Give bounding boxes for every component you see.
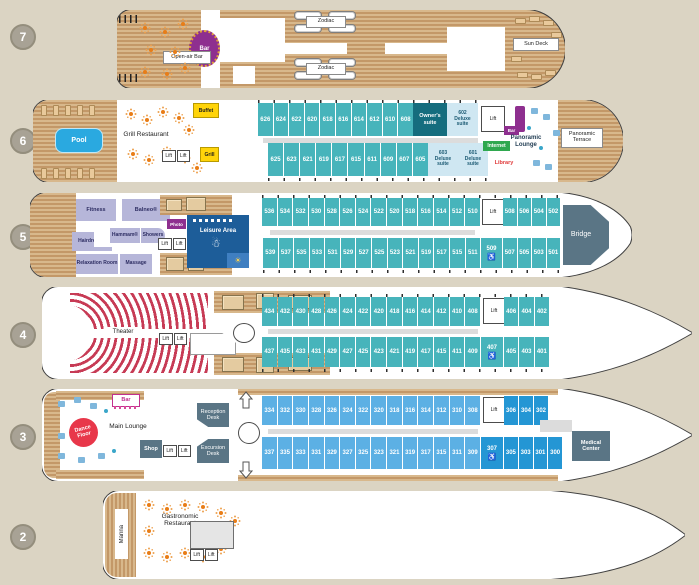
cabin: 412 <box>434 297 449 326</box>
dining-table-icon <box>173 112 185 124</box>
deck-5-cabin-row-bottom-fwd: 507505503501 <box>503 238 560 268</box>
cabin: 416 <box>403 297 418 326</box>
bar-stools <box>114 406 136 409</box>
cabin: 605 <box>413 143 428 176</box>
deck-4-cabin-row-bottom: 4374354334314294274254234214194174154114… <box>262 337 480 367</box>
cabin-number: 509 <box>486 246 496 252</box>
galley-furniture <box>222 357 244 372</box>
lounger-icon <box>53 105 59 116</box>
deck-4-cabin-row-top: 4344324304284264244224204184164144124104… <box>262 297 480 326</box>
balcony-ticks <box>262 369 549 372</box>
deck-7-structure <box>285 43 347 54</box>
lift: Lift <box>481 106 505 132</box>
cabin: 428 <box>309 297 324 326</box>
dining-table-icon <box>215 507 227 519</box>
cabin: 401 <box>535 337 549 367</box>
lounger-icon <box>77 105 83 116</box>
cabin: 531 <box>325 238 340 268</box>
shop: Shop <box>140 440 162 458</box>
deck-3-cabin-row-top: 3343323303283263243223203183163143123103… <box>262 396 480 425</box>
cabin: 432 <box>278 297 293 326</box>
cabin: 528 <box>325 198 340 226</box>
lift: Lift <box>158 238 172 250</box>
lounger-icon <box>545 70 556 76</box>
galley-furniture <box>222 295 244 310</box>
lift: Lift <box>190 549 204 561</box>
deck-5-cabin-row-top: 5365345325305285265245225205185165145125… <box>262 198 480 226</box>
suite-602: 602 Deluxe suite <box>447 103 478 136</box>
dining-table-icon <box>127 148 139 160</box>
dining-table-icon <box>125 108 137 120</box>
dining-table-icon <box>143 154 155 166</box>
lounge-furniture-icon <box>545 164 552 170</box>
dining-table-icon <box>143 547 155 559</box>
cabin: 312 <box>434 396 449 425</box>
cabin: 402 <box>535 297 549 326</box>
pool: Pool <box>55 128 103 153</box>
fitness-room: Fitness <box>76 199 116 221</box>
lift: Lift <box>174 333 188 345</box>
corridor <box>270 230 475 235</box>
side-deck-wood <box>238 475 558 481</box>
deck-2-badge: 2 <box>10 524 36 550</box>
davit-ticks <box>119 74 141 82</box>
dining-table-icon <box>141 114 153 126</box>
cabin: 403 <box>519 337 533 367</box>
cabin: 616 <box>336 103 351 136</box>
internet-label: Internet <box>483 141 510 151</box>
dining-table-icon <box>139 66 151 78</box>
cabin: 429 <box>325 337 340 367</box>
cabin-accessible: 307 ♿ <box>481 437 503 469</box>
cabin: 515 <box>450 238 465 268</box>
deck-6-cabin-row-bottom: 625623621619617615611609607605 <box>268 143 428 176</box>
lounge-furniture-icon <box>543 114 550 120</box>
cabin: 330 <box>293 396 308 425</box>
lounge-furniture-icon <box>533 160 540 166</box>
funnel <box>233 323 255 343</box>
lift: Lift <box>163 445 177 457</box>
zodiac-boats-bottom: Zodiac <box>292 57 358 79</box>
cabin: 322 <box>356 396 371 425</box>
deck-4-badge: 4 <box>10 322 36 348</box>
cabin: 618 <box>320 103 335 136</box>
lounge-furniture-icon <box>58 453 65 459</box>
deck-2-number: 2 <box>20 530 27 544</box>
wheelchair-icon: ♿ <box>488 453 497 461</box>
lounger-icon <box>511 56 522 62</box>
cabin: 315 <box>434 437 449 469</box>
cabin: 612 <box>367 103 382 136</box>
lift: Lift <box>177 150 191 162</box>
cabin-number: 407 <box>487 345 497 351</box>
cabin: 405 <box>504 337 518 367</box>
dining-table-icon <box>169 46 181 58</box>
main-lounge-label: Main Lounge <box>104 422 152 432</box>
cabin: 617 <box>332 143 347 176</box>
cabin: 321 <box>387 437 402 469</box>
grill-restaurant-label: Grill Restaurant <box>123 126 169 144</box>
relaxation-room: Relaxation Room <box>76 254 118 274</box>
cabin: 309 <box>465 437 480 469</box>
wheelchair-icon: ♿ <box>488 352 497 360</box>
lounger-icon <box>53 168 59 179</box>
lounge-furniture-icon <box>74 397 81 403</box>
cabin: 611 <box>365 143 380 176</box>
buffet-label: Buffet <box>193 103 219 118</box>
cabin: 610 <box>383 103 398 136</box>
lounger-icon <box>65 168 71 179</box>
davit-ticks <box>119 15 141 23</box>
corridor <box>540 420 572 432</box>
cabin: 624 <box>274 103 289 136</box>
cabin: 303 <box>519 437 533 469</box>
cabin: 337 <box>262 437 277 469</box>
galley-furniture <box>186 197 206 211</box>
library-label: Library <box>490 159 518 168</box>
side-deck-wood <box>238 389 558 395</box>
cabin: 519 <box>419 238 434 268</box>
cabin: 508 <box>503 198 517 226</box>
deck-4-number: 4 <box>20 328 27 342</box>
sun-icon: ☀ <box>227 253 249 268</box>
dance-floor: Dance Floor <box>69 418 98 447</box>
leisure-area-detail <box>193 219 233 222</box>
deck-5-number: 5 <box>20 230 27 244</box>
cabin: 502 <box>547 198 561 226</box>
cabin: 328 <box>309 396 324 425</box>
massage-room: Massage <box>120 254 152 274</box>
deck-3-cabin-row-bottom: 3373353333313293273253233213193173153113… <box>262 437 480 469</box>
cabin: 506 <box>518 198 532 226</box>
lift: Lift <box>159 333 173 345</box>
cabin: 410 <box>450 297 465 326</box>
galley-furniture <box>166 257 184 271</box>
dining-table-icon <box>143 499 155 511</box>
dining-table-icon <box>179 499 191 511</box>
lounge-furniture-icon <box>531 108 538 114</box>
cabin: 306 <box>504 396 518 425</box>
dining-table-icon <box>145 44 157 56</box>
stern-wood-deck <box>56 470 144 479</box>
funnel <box>238 422 260 444</box>
lift: Lift <box>482 199 504 225</box>
marina-area: Marina <box>115 509 128 559</box>
theater-label: Theater <box>104 327 142 338</box>
deck-7-structure <box>447 27 505 71</box>
cabin: 334 <box>262 396 277 425</box>
deck-7-structure <box>385 43 449 54</box>
deck-5-cabin-row-bottom: 5395375355335315295275255235215195175155… <box>263 238 480 268</box>
dining-table-icon <box>143 525 155 537</box>
dining-table-icon <box>139 22 151 34</box>
corridor <box>268 329 478 334</box>
dining-table-icon <box>177 18 189 30</box>
cabin: 530 <box>309 198 324 226</box>
cabin: 607 <box>397 143 412 176</box>
lounger-icon <box>77 168 83 179</box>
cabin-number: 307 <box>487 446 497 452</box>
dining-table-icon <box>161 68 173 80</box>
balcony-ticks <box>263 270 560 273</box>
dining-table-icon <box>159 26 171 38</box>
gangway-up-arrow-icon <box>239 391 253 409</box>
cabin: 529 <box>341 238 356 268</box>
deck-6-cabin-row-top: 626624622620618616614612610608 <box>258 103 413 136</box>
deck-5: Fitness Balneo® Hairdresser Hammam® Show… <box>30 193 632 277</box>
grill-label: Grill <box>200 147 219 162</box>
cabin: 622 <box>289 103 304 136</box>
lounge-furniture-icon <box>58 401 65 407</box>
balcony-ticks <box>268 178 488 181</box>
cabin: 325 <box>356 437 371 469</box>
cabin: 514 <box>434 198 449 226</box>
cabin: 408 <box>465 297 480 326</box>
cabin: 435 <box>278 337 293 367</box>
lounge-furniture-icon <box>90 403 97 409</box>
lift: Lift <box>205 549 219 561</box>
lift: Lift <box>162 150 176 162</box>
cabin: 539 <box>263 238 278 268</box>
cabin: 319 <box>403 437 418 469</box>
lounger-icon <box>41 168 47 179</box>
dining-table-icon <box>179 62 191 74</box>
cabin: 327 <box>340 437 355 469</box>
cabin: 320 <box>371 396 386 425</box>
cabin: 537 <box>279 238 294 268</box>
cabin: 620 <box>305 103 320 136</box>
cabin: 316 <box>403 396 418 425</box>
cabin-accessible: 509 ♿ <box>481 238 502 268</box>
deck-7-badge: 7 <box>10 24 36 50</box>
cabin: 335 <box>278 437 293 469</box>
cabin: 420 <box>371 297 386 326</box>
deck-7-structure <box>220 18 285 62</box>
cabin: 532 <box>293 198 308 226</box>
dance-floor-label: Dance Floor <box>68 423 99 442</box>
zodiac-label: Zodiac <box>306 63 346 75</box>
cabin-accessible: 407 ♿ <box>481 337 503 367</box>
deck-3-badge: 3 <box>10 424 36 450</box>
cabin: 318 <box>387 396 402 425</box>
photo-label: Photo <box>167 219 186 229</box>
cabin: 511 <box>466 238 481 268</box>
cabin: 310 <box>450 396 465 425</box>
cabin: 501 <box>547 238 561 268</box>
cabin: 608 <box>398 103 413 136</box>
lounge-furniture-icon <box>104 409 108 413</box>
deck-4-cabin-row-top-fwd: 406404402 <box>504 297 549 326</box>
lift: Lift <box>173 238 187 250</box>
cabin: 517 <box>434 238 449 268</box>
cabin: 505 <box>518 238 532 268</box>
cabin: 311 <box>450 437 465 469</box>
lounge-furniture-icon <box>553 130 560 136</box>
cabin: 437 <box>262 337 277 367</box>
cabin: 520 <box>387 198 402 226</box>
lounge-furniture-icon <box>112 449 116 453</box>
lounger-icon <box>551 32 562 38</box>
deck-3-number: 3 <box>20 430 27 444</box>
cabin: 308 <box>465 396 480 425</box>
panoramic-terrace-label: Panoramic Terrace <box>561 128 603 148</box>
cabin: 324 <box>340 396 355 425</box>
owners-suite: Owner's suite <box>413 103 447 136</box>
cabin: 433 <box>293 337 308 367</box>
cabin: 417 <box>418 337 433 367</box>
lounger-icon <box>531 74 542 80</box>
galley-block <box>190 521 234 549</box>
deck-7: Zodiac Zodiac Bar Open-air Bar Sun Deck <box>117 10 565 88</box>
cabin: 414 <box>418 297 433 326</box>
deck-6: Pool Buffet Grill Restaurant Lift Lift G… <box>33 100 623 182</box>
medical-center: Medical Center <box>572 431 610 461</box>
cabin: 525 <box>372 238 387 268</box>
cabin: 304 <box>519 396 533 425</box>
dining-table-icon <box>157 106 169 118</box>
lounge-furniture-icon <box>98 453 105 459</box>
deck-6-number: 6 <box>20 134 27 148</box>
cabin: 423 <box>371 337 386 367</box>
cabin: 527 <box>356 238 371 268</box>
lift-pair: Lift Lift <box>190 549 218 561</box>
dining-table-icon <box>183 124 195 136</box>
cabin: 534 <box>278 198 293 226</box>
cabin: 521 <box>403 238 418 268</box>
deck-3: Bar Dance Floor Main Lounge Shop Lift Li… <box>42 389 692 481</box>
cabin: 522 <box>371 198 386 226</box>
cabin: 426 <box>325 297 340 326</box>
deck-4-cabin-row-bottom-fwd: 405403401 <box>504 337 549 367</box>
cabin: 411 <box>450 337 465 367</box>
cabin: 421 <box>387 337 402 367</box>
suite-603: 603 Deluxe suite <box>428 143 458 176</box>
galley-furniture <box>166 199 182 211</box>
lift-pair: Lift Lift <box>159 333 187 345</box>
cabin: 305 <box>504 437 518 469</box>
cabin: 300 <box>548 437 562 469</box>
zodiac-label: Zodiac <box>306 16 346 28</box>
cabin: 424 <box>340 297 355 326</box>
lounger-icon <box>89 105 95 116</box>
cabin: 314 <box>418 396 433 425</box>
deck-4: Theater Lift Lift 4344324304284264244224… <box>42 287 692 379</box>
lift: Lift <box>483 298 505 324</box>
cabin: 333 <box>293 437 308 469</box>
lounge-furniture-icon <box>58 433 65 439</box>
marina-label: Marina <box>119 525 125 543</box>
cabin: 326 <box>325 396 340 425</box>
ship-deck-plan: 7 Zodiac <box>0 0 699 585</box>
cabin: 503 <box>532 238 546 268</box>
lift-pair: Lift Lift <box>163 445 191 457</box>
lounge-furniture-icon <box>527 126 531 130</box>
cabin: 535 <box>294 238 309 268</box>
corridor <box>263 138 478 143</box>
lounge-furniture-icon <box>78 457 85 463</box>
deck-2: Marina Gastronomic Restaurant Lift Lift <box>103 491 685 579</box>
cabin: 323 <box>371 437 386 469</box>
stern-wood-deck <box>30 193 76 277</box>
cabin: 621 <box>300 143 315 176</box>
cabin: 422 <box>356 297 371 326</box>
lounger-icon <box>515 18 526 24</box>
lounger-icon <box>517 72 528 78</box>
cabin: 533 <box>310 238 325 268</box>
dining-table-icon <box>161 503 173 515</box>
cabin: 431 <box>309 337 324 367</box>
cabin: 418 <box>387 297 402 326</box>
deck-3-cabin-row-bottom-fwd: 305303301300 <box>504 437 562 469</box>
cabin: 332 <box>278 396 293 425</box>
cabin: 623 <box>284 143 299 176</box>
dining-table-icon <box>197 501 209 513</box>
cabin: 331 <box>309 437 324 469</box>
cabin: 524 <box>356 198 371 226</box>
cabin: 536 <box>262 198 277 226</box>
lounger-icon <box>89 168 95 179</box>
cabin: 512 <box>450 198 465 226</box>
cabin: 434 <box>262 297 277 326</box>
zodiac-boats-top: Zodiac <box>292 10 358 32</box>
wheelchair-icon: ♿ <box>487 253 496 261</box>
lounger-icon <box>65 105 71 116</box>
cabin: 518 <box>403 198 418 226</box>
lounger-icon <box>543 20 554 26</box>
cabin: 615 <box>348 143 363 176</box>
cabin: 516 <box>418 198 433 226</box>
cabin: 507 <box>503 238 517 268</box>
lounge-furniture-icon <box>539 146 543 150</box>
snowman-icon: ☃ <box>211 237 221 250</box>
dining-table-icon <box>161 551 173 563</box>
cabin: 526 <box>340 198 355 226</box>
cabin: 625 <box>268 143 283 176</box>
cabin: 425 <box>356 337 371 367</box>
dining-table-icon <box>191 162 203 174</box>
cabin: 504 <box>532 198 546 226</box>
hammam-room: Hammam® <box>110 228 140 243</box>
cabin: 329 <box>325 437 340 469</box>
deck-7-structure <box>233 66 255 84</box>
cabin: 626 <box>258 103 273 136</box>
cabin: 406 <box>504 297 518 326</box>
lift-pair: Lift Lift <box>158 238 186 250</box>
cabin: 301 <box>534 437 548 469</box>
deck-7-number: 7 <box>20 30 27 44</box>
lounger-icon <box>41 105 47 116</box>
lift: Lift <box>178 445 192 457</box>
cabin: 415 <box>434 337 449 367</box>
lift: Lift <box>483 397 505 423</box>
cabin: 523 <box>388 238 403 268</box>
leisure-area: Leisure Area ☃ ☀ <box>187 215 249 268</box>
lift-pair: Lift Lift <box>162 150 190 162</box>
cabin: 614 <box>352 103 367 136</box>
cabin: 430 <box>293 297 308 326</box>
theater-stage <box>44 305 92 361</box>
cabin: 427 <box>340 337 355 367</box>
cabin: 619 <box>316 143 331 176</box>
cabin: 609 <box>381 143 396 176</box>
cabin: 317 <box>418 437 433 469</box>
cabin: 510 <box>465 198 480 226</box>
gangway-down-arrow-icon <box>239 461 253 479</box>
cabin: 409 <box>465 337 480 367</box>
lounger-icon <box>529 16 540 22</box>
cabin: 404 <box>519 297 533 326</box>
sun-deck-label: Sun Deck <box>513 38 559 51</box>
